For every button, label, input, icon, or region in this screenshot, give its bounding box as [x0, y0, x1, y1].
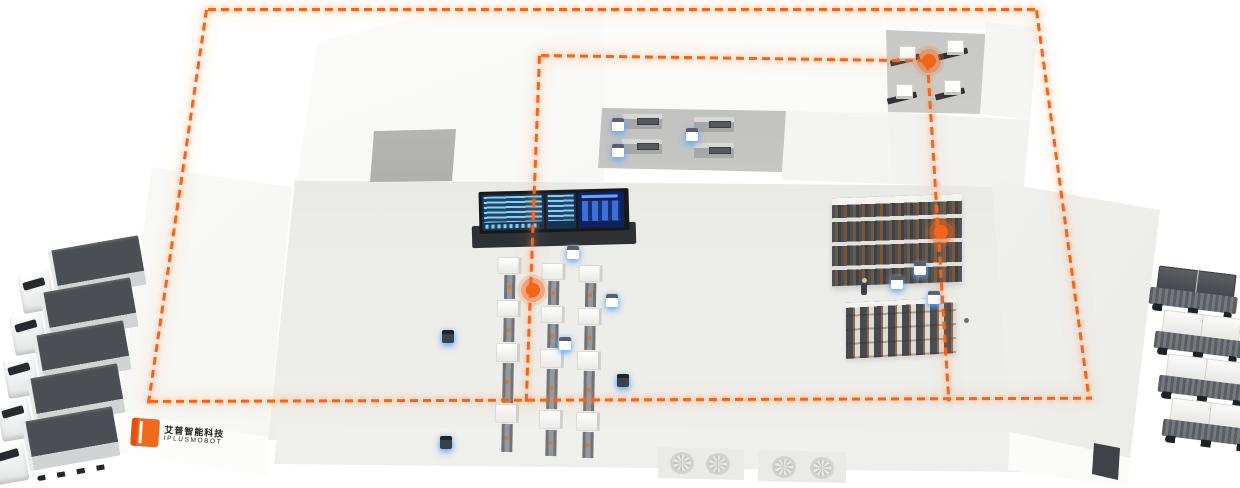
cargo-shuttle — [1160, 397, 1240, 455]
dock-station — [622, 139, 662, 154]
vent-fan-icon — [706, 453, 730, 475]
dock-station — [694, 143, 734, 158]
control-dashboard — [478, 188, 629, 234]
transfer-machine — [887, 84, 921, 108]
mobile-robot-dark — [442, 330, 454, 343]
dashboard-screen-stats — [578, 191, 625, 228]
mobile-robot-dark — [617, 374, 629, 387]
mobile-robot — [686, 128, 698, 141]
mobile-robot — [612, 144, 624, 157]
mobile-robot-dark — [440, 436, 452, 449]
dock-station — [622, 114, 662, 129]
vent-fan-icon — [772, 456, 796, 478]
dock-station — [694, 117, 734, 132]
mobile-robot — [914, 262, 926, 275]
vent-fan-icon — [670, 452, 694, 474]
dashboard-screen-list — [546, 192, 577, 229]
route-node — [924, 215, 958, 249]
production-line — [575, 264, 602, 458]
brand-logo: 艾普智能科技 IPLUSMOBOT — [130, 410, 261, 463]
brand-logo-icon — [130, 418, 160, 448]
worker-figure — [963, 323, 969, 335]
mobile-robot — [612, 118, 624, 131]
transfer-machine — [935, 80, 969, 104]
mobile-robot — [928, 291, 940, 304]
route-node — [516, 273, 550, 307]
factory-illustration: 艾普智能科技 IPLUSMOBOT — [0, 0, 1240, 488]
route-node — [912, 44, 946, 78]
vent-fan-icon — [810, 457, 834, 479]
route-segment-top — [208, 8, 1038, 11]
asrs-rack-secondary — [846, 297, 956, 359]
mobile-robot — [606, 294, 618, 307]
worker-figure — [861, 283, 867, 295]
mobile-robot — [567, 246, 579, 259]
mobile-robot — [559, 337, 571, 350]
mobile-robot — [891, 276, 903, 289]
brand-logo-text: 艾普智能科技 IPLUSMOBOT — [163, 425, 224, 447]
